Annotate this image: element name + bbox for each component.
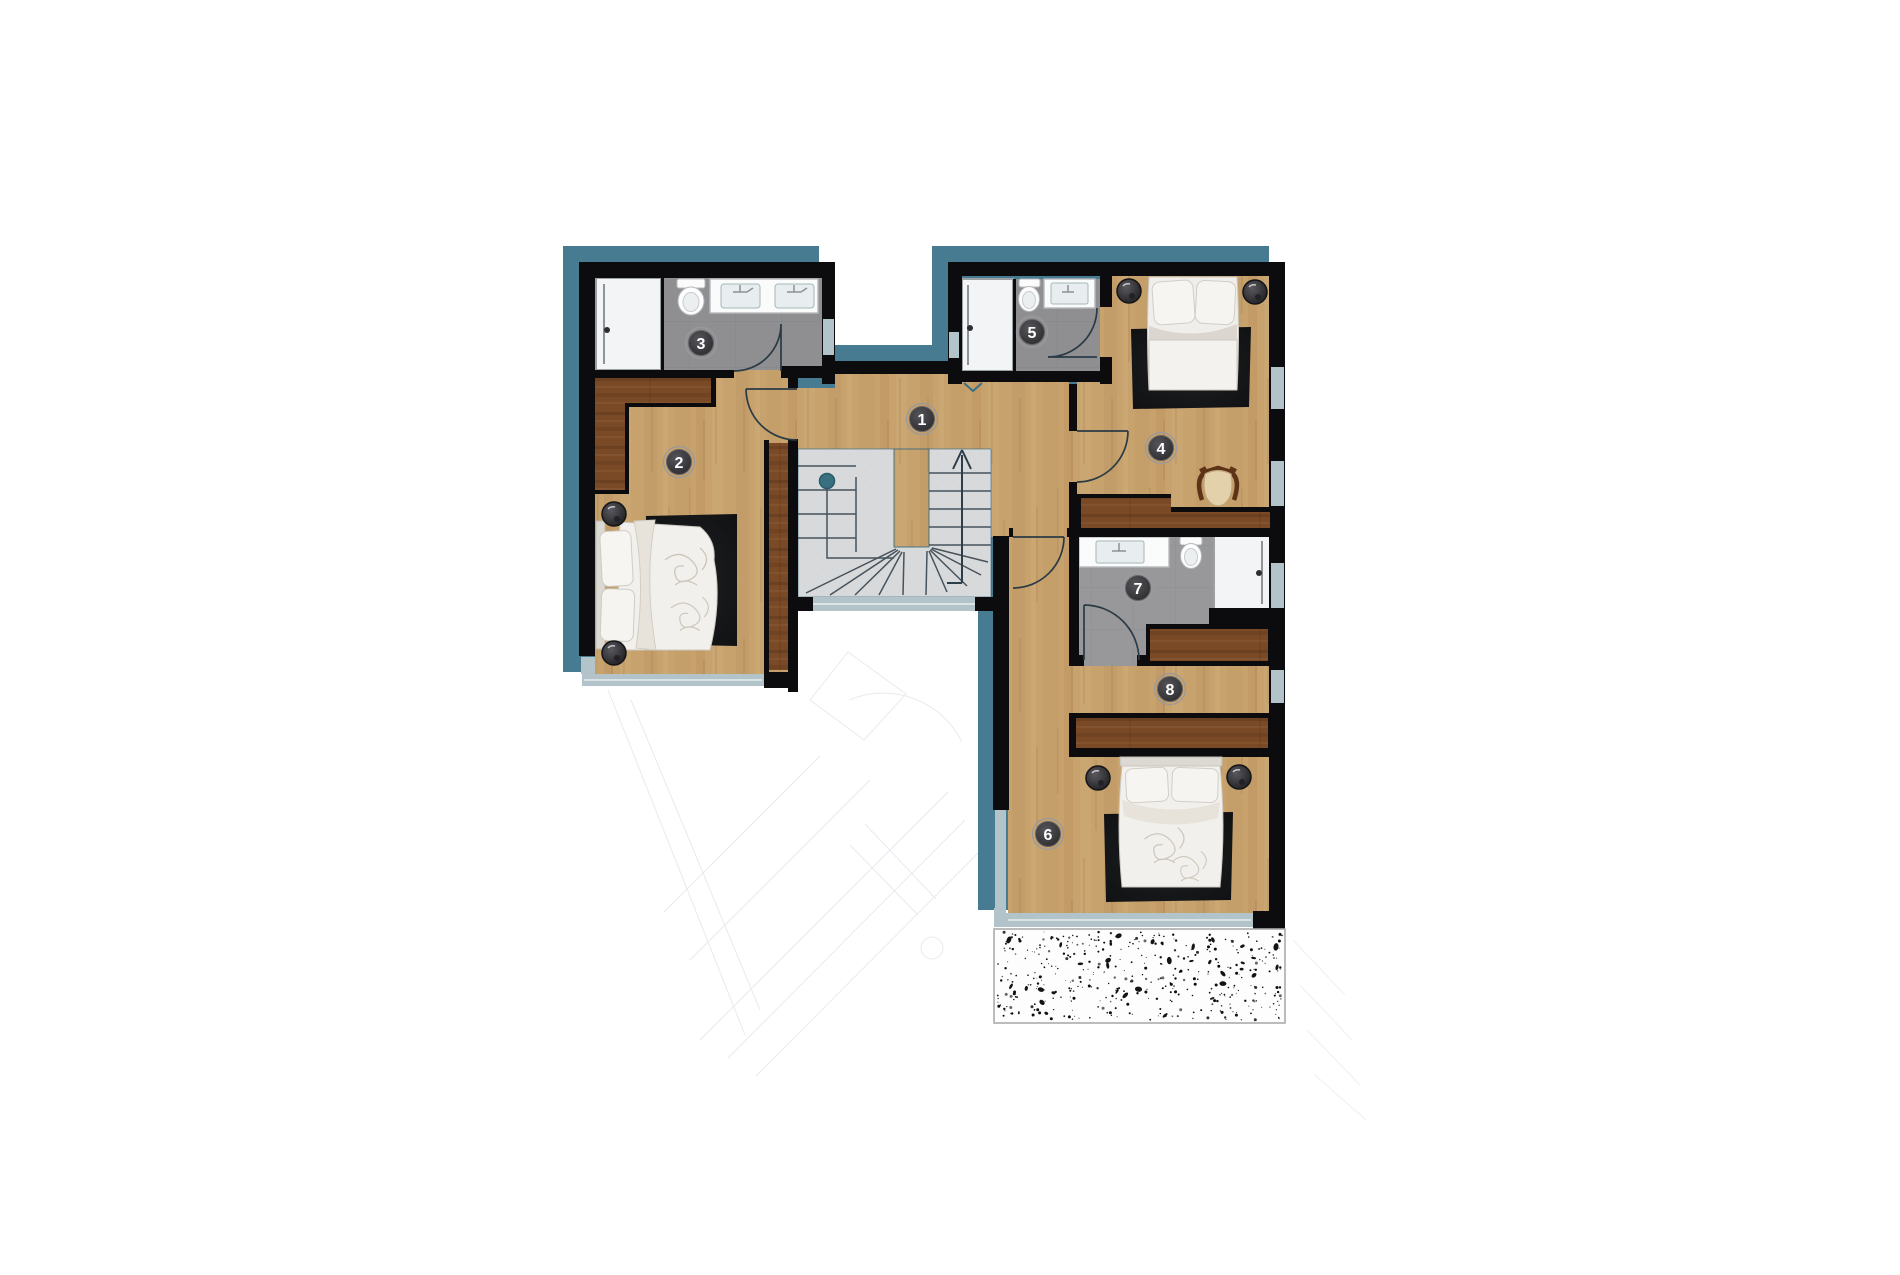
svg-text:7: 7 xyxy=(1134,581,1143,598)
svg-text:4: 4 xyxy=(1157,441,1166,458)
svg-text:8: 8 xyxy=(1166,682,1175,699)
svg-text:6: 6 xyxy=(1044,827,1053,844)
svg-text:3: 3 xyxy=(697,336,706,353)
svg-text:5: 5 xyxy=(1028,325,1037,342)
svg-text:1: 1 xyxy=(918,412,927,429)
svg-text:2: 2 xyxy=(675,455,684,472)
